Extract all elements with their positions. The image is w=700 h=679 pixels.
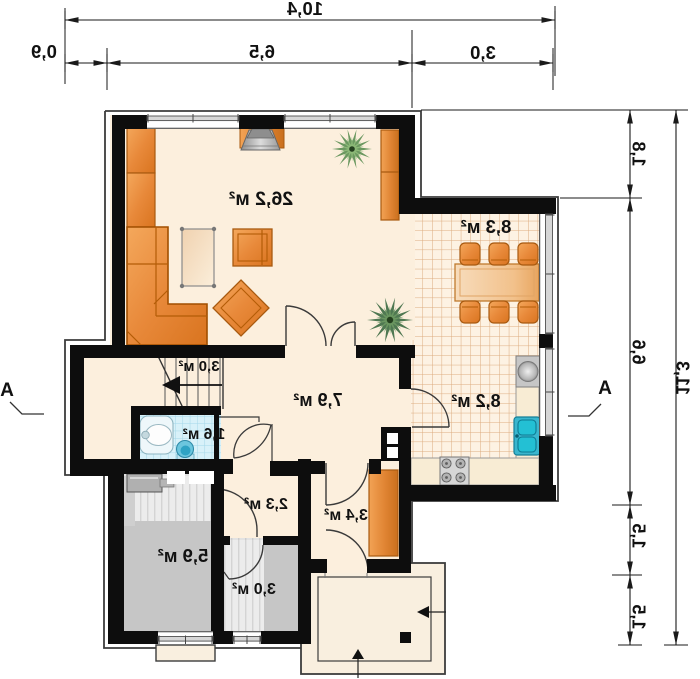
svg-text:A: A <box>0 380 14 401</box>
svg-text:8,2 м²: 8,2 м² <box>451 391 500 411</box>
svg-text:7,9 м²: 7,9 м² <box>293 390 342 410</box>
svg-text:3,4 м²: 3,4 м² <box>324 507 368 524</box>
svg-text:1,8: 1,8 <box>628 141 648 166</box>
svg-text:A: A <box>598 378 612 399</box>
svg-text:0,9: 0,9 <box>31 41 57 62</box>
svg-text:1,5: 1,5 <box>628 523 648 548</box>
svg-text:3,0 м²: 3,0 м² <box>232 581 276 598</box>
svg-text:6,5: 6,5 <box>249 41 275 62</box>
svg-text:3,0 м²: 3,0 м² <box>178 358 219 375</box>
svg-text:6,6: 6,6 <box>628 339 648 364</box>
svg-text:3,0: 3,0 <box>470 42 496 63</box>
svg-text:2,3 м²: 2,3 м² <box>244 496 288 513</box>
svg-text:8,3 м²: 8,3 м² <box>461 216 512 237</box>
svg-text:26,2 м²: 26,2 м² <box>228 188 293 210</box>
svg-text:1,5: 1,5 <box>628 604 648 629</box>
svg-text:5,9 м²: 5,9 м² <box>158 545 209 566</box>
svg-text:1,6 м²: 1,6 м² <box>183 426 225 443</box>
svg-text:11,3: 11,3 <box>672 361 692 395</box>
svg-text:10,4: 10,4 <box>286 0 323 19</box>
